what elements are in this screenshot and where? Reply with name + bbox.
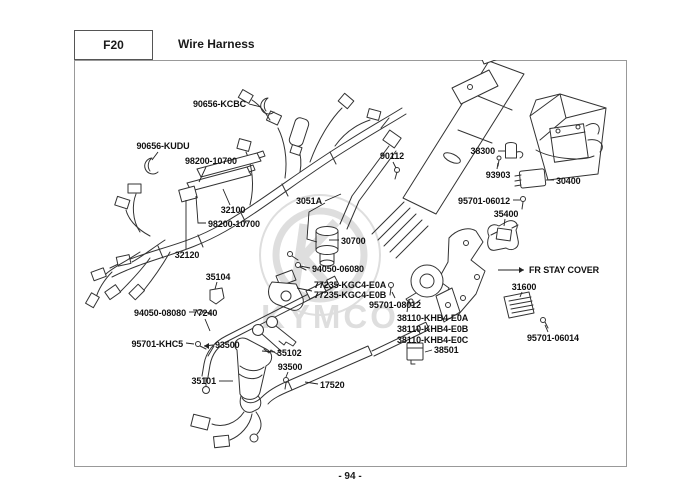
part-label-94050-08080: 94050-08080 (134, 308, 186, 318)
leader-line (393, 162, 396, 168)
part-label-35101: 35101 (191, 376, 216, 386)
bolt-95701-06012 (521, 197, 526, 202)
leader-line (215, 282, 217, 289)
leader-line (504, 219, 505, 226)
part-label-90656-kcbc: 90656-KCBC (193, 99, 247, 109)
clip-90656-kudu (145, 158, 158, 174)
leader-line (186, 343, 194, 344)
part-label-32120: 32120 (175, 250, 200, 260)
harness-branch-connectors (86, 90, 381, 308)
part-label-3051a: 3051A (296, 196, 323, 206)
bolt-93903 (497, 156, 501, 160)
catalog-page: F20 Wire Harness KYMCO (0, 0, 700, 495)
part-label-35400: 35400 (494, 209, 519, 219)
part-label-fr-stay-cover: FR STAY COVER (529, 265, 600, 275)
section-code-box: F20 (74, 30, 153, 60)
fr-stay-cover-bracket (436, 229, 485, 322)
leader-line (152, 152, 158, 160)
leader-line (196, 196, 206, 223)
part-label-77235-kgc4-e0a: 77235-KGC4-E0A (314, 280, 387, 290)
page-number: - 94 - (0, 471, 700, 482)
part-label-93500: 93500 (215, 340, 240, 350)
leader-line (205, 319, 210, 331)
leader-line (286, 372, 288, 377)
page-title: Wire Harness (178, 37, 255, 51)
part-label-38110-khb4-e0c: 38110-KHB4-E0C (397, 335, 469, 345)
part-label-95701-06012: 95701-06012 (458, 196, 510, 206)
part-label-95701-08012: 95701-08012 (369, 300, 421, 310)
part-label-94050-06080: 94050-06080 (312, 264, 364, 274)
part-label-98200-10700: 98200-10700 (208, 219, 260, 229)
part-label-77235-kgc4-e0b: 77235-KGC4-E0B (314, 290, 387, 300)
part-label-32100: 32100 (221, 205, 246, 215)
part-label-38501: 38501 (434, 345, 459, 355)
part-label-93500: 93500 (278, 362, 303, 372)
leader-line (425, 350, 432, 352)
leader-line (497, 163, 498, 169)
part-label-95701-khc5: 95701-KHC5 (131, 339, 183, 349)
leader-arrowhead-icon (519, 267, 524, 273)
wire-harness-diagram: KYMCO (74, 60, 627, 467)
leader-line (223, 189, 230, 205)
battery-box (530, 94, 606, 180)
relay-38501 (407, 343, 423, 360)
part-label-17520: 17520 (320, 380, 345, 390)
section-code: F20 (103, 38, 124, 52)
part-label-35104: 35104 (206, 272, 231, 282)
part-label-98200-10700: 98200-10700 (185, 156, 237, 166)
cdi-unit-30400 (519, 169, 546, 189)
part-label-38110-khb4-e0a: 38110-KHB4-E0A (397, 313, 469, 323)
part-label-38300: 38300 (470, 146, 495, 156)
clip-35104 (210, 288, 224, 304)
part-label-95701-06014: 95701-06014 (527, 333, 579, 343)
part-label-77240: 77240 (193, 308, 218, 318)
part-label-90656-kudu: 90656-KUDU (136, 141, 189, 151)
part-label-93903: 93903 (486, 170, 511, 180)
diagram-artwork (86, 60, 606, 448)
part-label-90112: 90112 (380, 151, 404, 161)
part-label-31600: 31600 (512, 282, 537, 292)
part-label-38110-khb4-e0b: 38110-KHB4-E0B (397, 324, 469, 334)
bolt-95701-08012 (389, 283, 394, 288)
relay-cdi-group (497, 143, 546, 189)
part-label-35102: 35102 (277, 348, 302, 358)
part-label-30400: 30400 (556, 176, 581, 186)
rectifier-group (504, 292, 548, 328)
part-label-30700: 30700 (341, 236, 366, 246)
